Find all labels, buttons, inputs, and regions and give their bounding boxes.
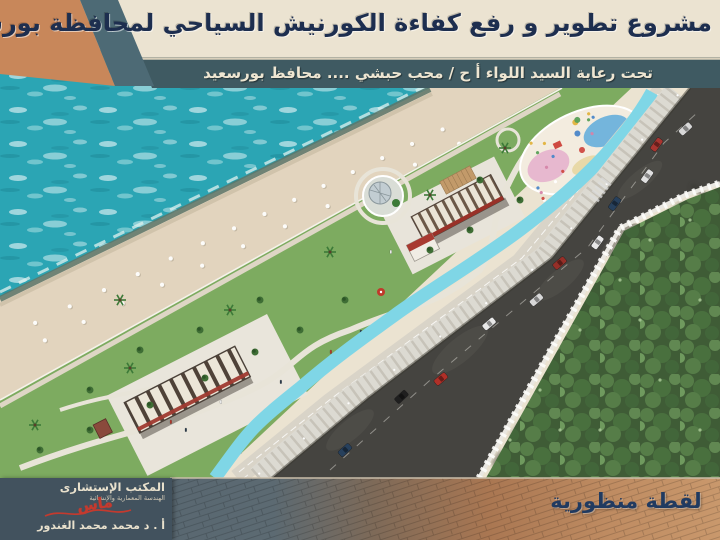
slide-subtitle: تحت رعاية السيد اللواء أ ح / محب حبشي ..…	[150, 58, 706, 88]
gazebo	[363, 176, 403, 216]
slide-title: مشروع تطوير و رفع كفاءة الكورنيش السياحي…	[130, 9, 712, 37]
signature-underline	[43, 508, 135, 520]
logo-office-name: المكتب الإستشارى	[5, 481, 165, 494]
logo-author-name: أ . د محمد محمد الغندور	[5, 519, 165, 532]
gazebo-palm	[392, 199, 400, 207]
red-umbrella-top	[380, 291, 382, 293]
perspective-caption: لقطة منظورية	[538, 489, 714, 513]
presentation-slide: مشروع تطوير و رفع كفاءة الكورنيش السياحي…	[0, 0, 720, 540]
logo-signature: ماس	[5, 502, 165, 518]
consultant-logo-box: المكتب الإستشارى الهندسة المعمارية والإن…	[0, 478, 172, 540]
